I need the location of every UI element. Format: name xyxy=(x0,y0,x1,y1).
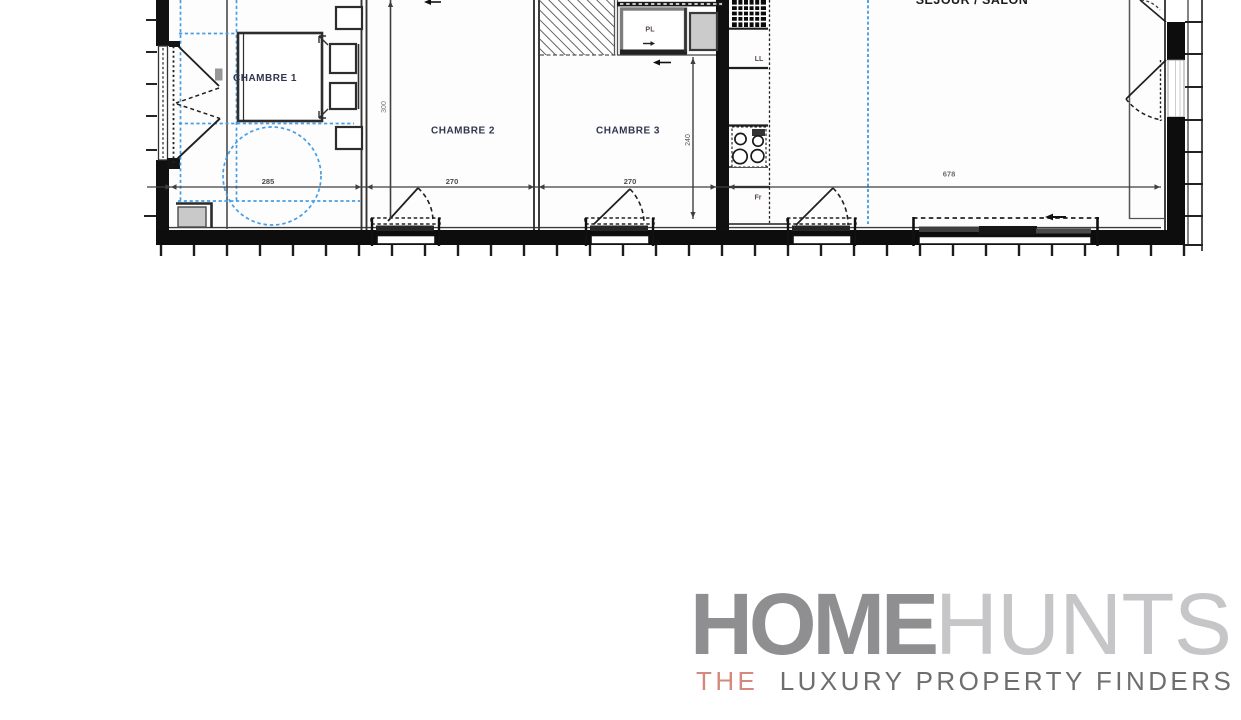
svg-text:CHAMBRE 3: CHAMBRE 3 xyxy=(596,126,660,137)
svg-text:678: 678 xyxy=(943,170,956,179)
svg-text:LL: LL xyxy=(755,56,764,63)
svg-text:300: 300 xyxy=(381,101,388,113)
svg-text:270: 270 xyxy=(624,177,637,186)
svg-text:SEJOUR / SALON: SEJOUR / SALON xyxy=(916,0,1029,7)
svg-text:285: 285 xyxy=(262,177,275,186)
svg-text:240: 240 xyxy=(685,134,692,146)
svg-text:CHAMBRE 1: CHAMBRE 1 xyxy=(233,73,297,84)
svg-text:PL: PL xyxy=(645,25,655,34)
svg-text:270: 270 xyxy=(446,177,459,186)
svg-text:Fr: Fr xyxy=(755,195,762,202)
svg-text:CHAMBRE 2: CHAMBRE 2 xyxy=(431,126,495,137)
